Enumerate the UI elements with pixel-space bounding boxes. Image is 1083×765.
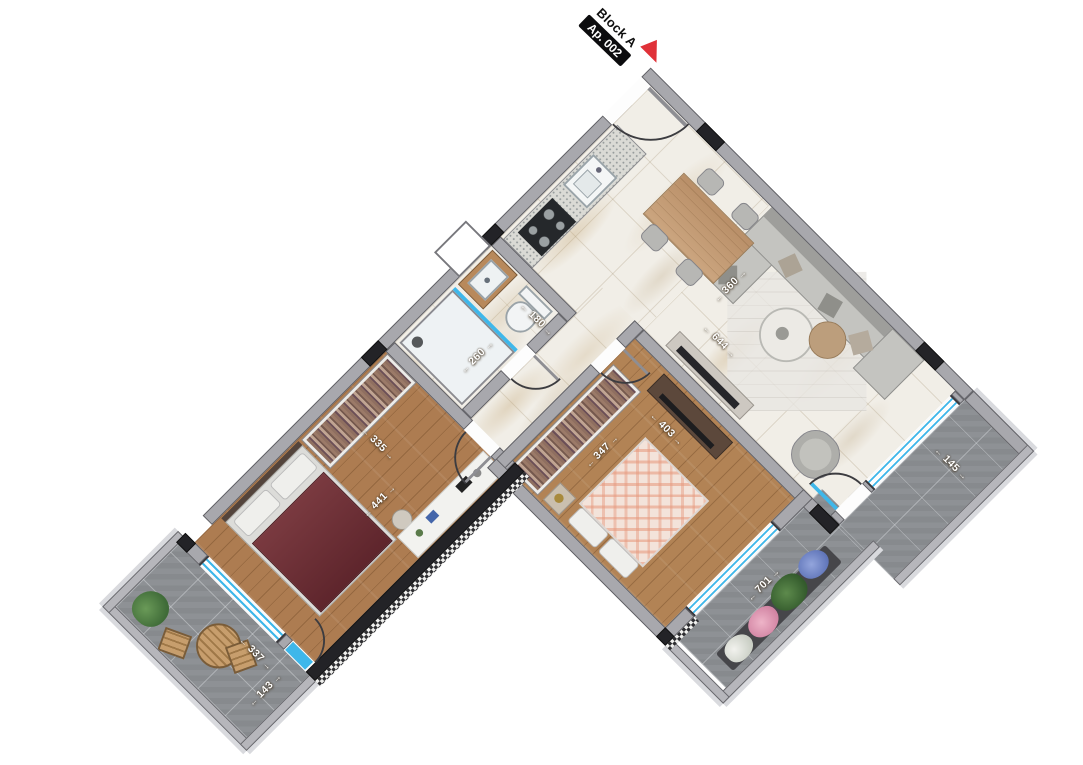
floor-plan-canvas: ← 260 → ← 180 → ← 335 → ← 441 → ← 347 → … — [0, 0, 1083, 765]
apartment-floor-plan: ← 260 → ← 180 → ← 335 → ← 441 → ← 347 → … — [0, 0, 1083, 765]
